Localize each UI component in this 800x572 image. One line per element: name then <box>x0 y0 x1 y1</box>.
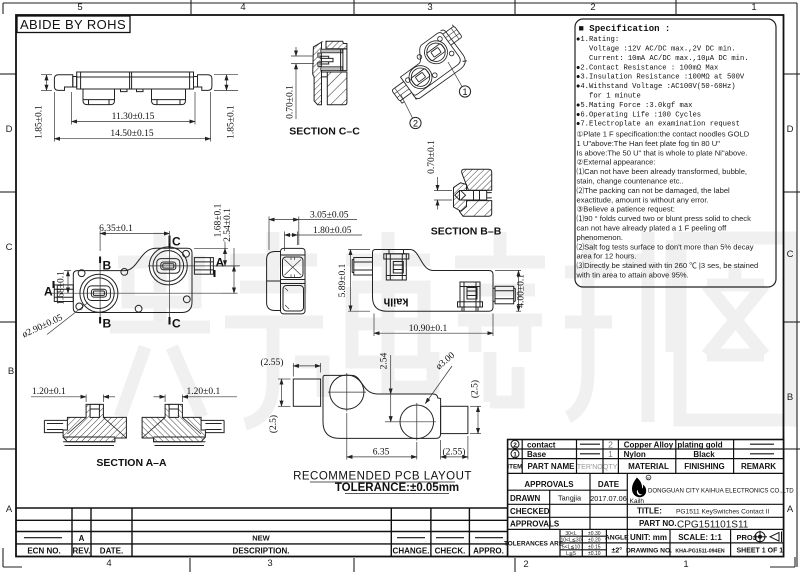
svg-text:1: 1 <box>608 449 613 459</box>
svg-text:A: A <box>216 256 225 270</box>
svg-text:1.85±0.1: 1.85±0.1 <box>35 105 45 139</box>
svg-text:■ Specification :: ■ Specification : <box>579 24 671 34</box>
svg-text:PART NO.: PART NO. <box>639 519 677 528</box>
svg-text:1: 1 <box>513 452 517 459</box>
svg-text:⑵The packing can not be damage: ⑵The packing can not be damaged, the lab… <box>577 185 731 195</box>
svg-text:2017.07.06: 2017.07.06 <box>590 494 627 503</box>
svg-text:MATERIAL: MATERIAL <box>628 462 669 471</box>
svg-text:⑴90 ° folds curved two or blun: ⑴90 ° folds curved two or blunt press so… <box>577 213 752 223</box>
svg-text:can not have already plated a: can not have already plated a 1 F peelin… <box>577 224 728 233</box>
svg-text:10<L≦30: 10<L≦30 <box>560 538 581 544</box>
svg-text:L≦5: L≦5 <box>566 551 576 557</box>
svg-text:SECTION C–C: SECTION C–C <box>289 126 360 138</box>
svg-text:exactitude, amount is without: exactitude, amount is without any error. <box>577 195 709 204</box>
svg-text:1.85±0.1: 1.85±0.1 <box>227 105 237 139</box>
svg-text:Kailh: Kailh <box>630 498 645 505</box>
svg-text:CHECK.: CHECK. <box>435 547 466 556</box>
svg-text:3: 3 <box>267 558 272 569</box>
svg-text:CHECKED: CHECKED <box>510 507 550 516</box>
svg-text:for 1 minute: for 1 minute <box>589 93 641 101</box>
svg-text:APPROVALS: APPROVALS <box>524 480 574 489</box>
svg-text:±2°: ±2° <box>612 547 623 555</box>
svg-text:1.20±0.1: 1.20±0.1 <box>187 387 221 397</box>
svg-text:ECN NO.: ECN NO. <box>27 547 60 556</box>
svg-text:phenomenon.: phenomenon. <box>577 233 623 242</box>
svg-text:CHANGE.: CHANGE. <box>393 547 430 556</box>
svg-text:5.89±0.1: 5.89±0.1 <box>338 263 348 297</box>
svg-text:A: A <box>44 285 53 299</box>
svg-text:D: D <box>787 124 794 135</box>
svg-text:●2.Contact Resistance : 100mΩ: ●2.Contact Resistance : 100mΩ Max <box>576 64 718 72</box>
svg-text:5: 5 <box>77 2 82 13</box>
svg-text:●1.Rating:: ●1.Rating: <box>576 36 619 44</box>
svg-text:REV.: REV. <box>73 547 91 556</box>
svg-text:4: 4 <box>240 2 245 13</box>
svg-text:±0.30: ±0.30 <box>588 531 601 537</box>
svg-text:③Believe a patience request:: ③Believe a patience request: <box>577 205 675 214</box>
svg-text:Tangjia: Tangjia <box>558 494 582 503</box>
svg-text:Voltage :12V AC/DC max.,2V DC: Voltage :12V AC/DC max.,2V DC min. <box>589 46 736 54</box>
svg-text:②External appearance:: ②External appearance: <box>577 158 656 167</box>
svg-text:SECTION A–A: SECTION A–A <box>96 457 167 469</box>
svg-text:A: A <box>787 504 794 515</box>
svg-text:DRAWN: DRAWN <box>510 494 540 503</box>
svg-text:CPG151101S11: CPG151101S11 <box>677 520 749 531</box>
svg-text:D: D <box>6 124 13 135</box>
svg-text:Current: 10mA AC/DC max.,10μA: Current: 10mA AC/DC max.,10μA DC min. <box>589 55 749 63</box>
svg-text:A: A <box>79 534 85 543</box>
svg-text:FINISHING: FINISHING <box>684 462 724 471</box>
svg-text:6.35: 6.35 <box>373 448 390 458</box>
svg-text:DATE.: DATE. <box>100 547 123 556</box>
svg-text:±0.10: ±0.10 <box>588 551 601 557</box>
svg-text:APPRO.: APPRO. <box>473 547 504 556</box>
svg-text:B: B <box>103 259 112 273</box>
svg-text:●6.Operating Life :100 Cycles: ●6.Operating Life :100 Cycles <box>576 111 701 119</box>
svg-text:ABIDE BY ROHS: ABIDE BY ROHS <box>20 17 126 32</box>
svg-text:DATE: DATE <box>598 480 620 489</box>
svg-text:C: C <box>172 235 181 249</box>
svg-text:⑴Can not have been already tra: ⑴Can not have been already transformed, … <box>577 166 748 176</box>
svg-text:●7.Electroplate an examination: ●7.Electroplate an examination request <box>576 121 740 129</box>
svg-text:DRAWING NO.: DRAWING NO. <box>626 548 672 555</box>
svg-text:Base: Base <box>527 450 547 459</box>
svg-text:ANGLE: ANGLE <box>605 535 629 542</box>
svg-text:C: C <box>172 317 181 331</box>
svg-text:REMARK: REMARK <box>741 462 776 471</box>
svg-text:ITEM: ITEM <box>507 464 522 471</box>
svg-text:2: 2 <box>590 2 595 13</box>
svg-text:TOLERANCES ARE: TOLERANCES ARE <box>504 541 564 548</box>
svg-text:A: A <box>6 504 13 515</box>
svg-text:SHEET 1 OF 1: SHEET 1 OF 1 <box>737 548 784 555</box>
svg-text:4.00±0.1: 4.00±0.1 <box>517 274 527 308</box>
svg-text:1.68±0.1: 1.68±0.1 <box>57 271 67 305</box>
svg-text:contact: contact <box>527 440 556 449</box>
svg-text:area for 12 hours.: area for 12 hours. <box>577 252 637 261</box>
svg-text:●5.Mating Force :3.0kgf max: ●5.Mating Force :3.0kgf max <box>576 102 692 110</box>
svg-text:3: 3 <box>427 2 432 13</box>
svg-text:UNIT: mm: UNIT: mm <box>630 533 667 542</box>
svg-text:B: B <box>8 366 14 377</box>
svg-text:TER'NO: TER'NO <box>577 464 603 471</box>
svg-text:1: 1 <box>462 87 467 97</box>
svg-text:SCALE: 1:1: SCALE: 1:1 <box>678 533 722 542</box>
svg-text:(2.55): (2.55) <box>261 357 284 368</box>
svg-text:(2.55): (2.55) <box>443 447 466 458</box>
svg-text:Is above:The 50 U" that is who: Is above:The 50 U" that is whole to plat… <box>577 148 748 157</box>
svg-text:B: B <box>787 392 793 403</box>
svg-text:2: 2 <box>413 119 418 129</box>
svg-text:5<L≦10: 5<L≦10 <box>562 544 580 550</box>
svg-text:±0.20: ±0.20 <box>588 538 601 544</box>
svg-text:●3.Insulation Resistance :100M: ●3.Insulation Resistance :100MΩ at 500V <box>576 74 745 82</box>
svg-text:B: B <box>103 317 112 331</box>
svg-text:stain, change countenance etc.: stain, change countenance etc.. <box>577 177 684 186</box>
svg-text:1.20±0.1: 1.20±0.1 <box>32 387 66 397</box>
svg-text:6.35±0.1: 6.35±0.1 <box>99 224 133 234</box>
svg-text:TOLERANCE:±0.05mm: TOLERANCE:±0.05mm <box>335 482 459 494</box>
svg-text:1 U"above:The Han feet plate f: 1 U"above:The Han feet plate fog tin 80 … <box>577 139 721 148</box>
svg-text:DESCRIPTION.: DESCRIPTION. <box>233 547 290 556</box>
svg-text:with tin area to attain above: with tin area to attain above 95%. <box>576 271 689 280</box>
svg-text:⑵Salt fog tests surface to don: ⑵Salt fog tests surface to don't more th… <box>577 241 754 251</box>
svg-text:10.90±0.1: 10.90±0.1 <box>409 324 448 334</box>
svg-text:2.54: 2.54 <box>380 352 390 369</box>
svg-text:0.70±0.1: 0.70±0.1 <box>286 85 296 119</box>
svg-text:kailh: kailh <box>383 296 408 308</box>
svg-text:plating gold: plating gold <box>677 440 722 449</box>
svg-text:PART NAME: PART NAME <box>528 462 576 471</box>
svg-text:4: 4 <box>106 558 111 569</box>
svg-text:±0.15: ±0.15 <box>588 544 601 550</box>
svg-text:14.50±0.15: 14.50±0.15 <box>110 129 153 139</box>
svg-text:1.80±0.05: 1.80±0.05 <box>313 226 352 236</box>
svg-text:PROJ: PROJ <box>737 533 757 542</box>
svg-text:Nylon: Nylon <box>624 450 646 459</box>
svg-text:DONGGUAN CITY KAIHUA ELECTRONI: DONGGUAN CITY KAIHUA ELECTRONICS CO.,LTD <box>648 488 794 495</box>
svg-text:TITLE:: TITLE: <box>637 507 662 516</box>
svg-text:APPROVALS: APPROVALS <box>510 520 560 529</box>
svg-text:1: 1 <box>751 2 756 13</box>
svg-text:(2.5): (2.5) <box>268 415 279 433</box>
svg-text:2: 2 <box>608 439 613 449</box>
svg-text:QTY.: QTY. <box>603 464 618 471</box>
svg-text:Black: Black <box>693 450 715 459</box>
svg-text:Copper Alloy: Copper Alloy <box>624 440 674 449</box>
svg-text:C: C <box>6 242 13 253</box>
svg-text:2: 2 <box>513 442 517 449</box>
svg-text:NEW: NEW <box>252 534 270 543</box>
svg-text:11.30±0.15: 11.30±0.15 <box>112 112 155 122</box>
svg-text:RECOMMENDED PCB LAYOUT: RECOMMENDED PCB LAYOUT <box>293 471 472 483</box>
svg-text:2.54±0.1: 2.54±0.1 <box>223 208 233 242</box>
svg-text:30<L: 30<L <box>565 531 576 537</box>
svg-text:(2.5): (2.5) <box>470 380 481 398</box>
svg-text:2: 2 <box>523 559 528 570</box>
svg-text:0.70±0.1: 0.70±0.1 <box>427 140 437 174</box>
svg-text:⑶Directly be stained with tin: ⑶Directly be stained with tin 260 ℃ |3 s… <box>577 260 759 270</box>
svg-text:PG1511 KeySwitches Contact II: PG1511 KeySwitches Contact II <box>676 509 770 516</box>
svg-text:3.05±0.05: 3.05±0.05 <box>310 211 349 221</box>
svg-text:C: C <box>787 249 794 260</box>
svg-text:SECTION B–B: SECTION B–B <box>431 226 502 238</box>
svg-text:①Plate 1 F specification:the c: ①Plate 1 F specification:the contact noo… <box>577 130 750 139</box>
svg-text:●4.Withstand Voltage :AC100V(5: ●4.Withstand Voltage :AC100V(50-60Hz) <box>576 83 736 91</box>
svg-text:KHA-PG1511-094EN: KHA-PG1511-094EN <box>675 549 725 555</box>
svg-text:1: 1 <box>683 559 688 570</box>
